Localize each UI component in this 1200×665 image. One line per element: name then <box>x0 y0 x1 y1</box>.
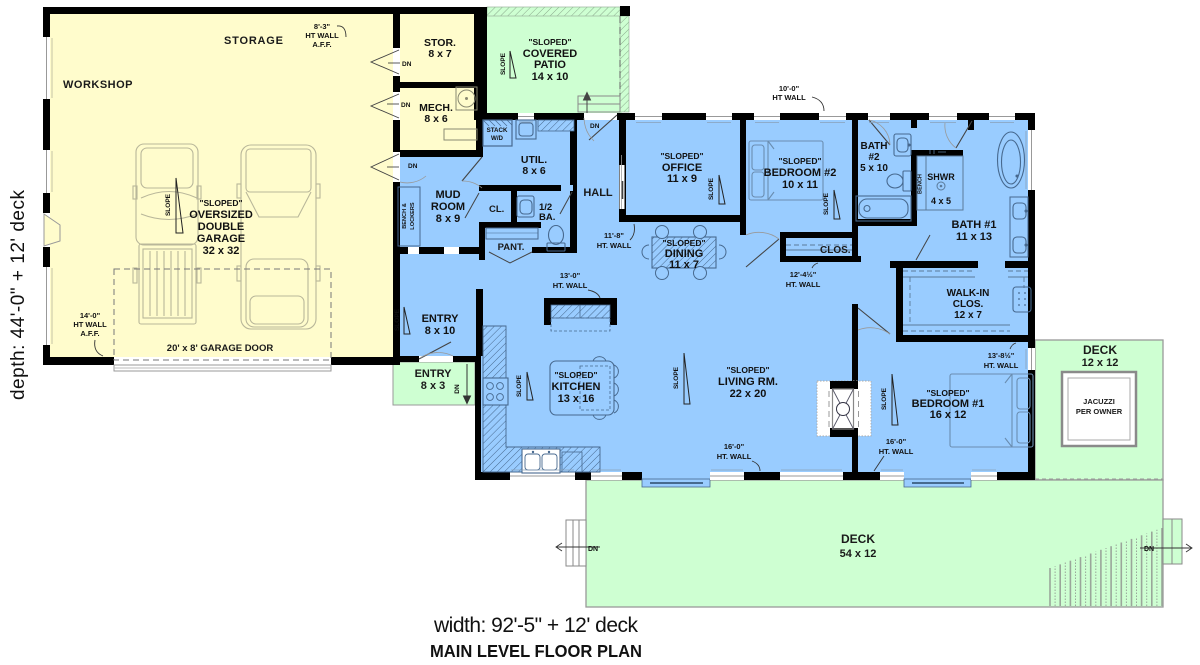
svg-text:SHWR: SHWR <box>927 172 955 182</box>
svg-text:BEDROOM #2: BEDROOM #2 <box>764 167 837 179</box>
svg-text:A.F.F.: A.F.F. <box>312 40 331 49</box>
svg-text:WALK-IN: WALK-IN <box>947 288 990 299</box>
svg-text:11 x 13: 11 x 13 <box>956 231 992 243</box>
svg-text:4 x 5: 4 x 5 <box>931 196 951 206</box>
svg-text:STACK: STACK <box>487 127 508 134</box>
svg-text:GARAGE: GARAGE <box>197 233 245 245</box>
svg-text:ENTRY: ENTRY <box>422 313 460 325</box>
svg-text:14'-0": 14'-0" <box>80 311 101 320</box>
svg-text:"SLOPED": "SLOPED" <box>554 370 597 380</box>
svg-text:A.F.F.: A.F.F. <box>80 329 99 338</box>
svg-text:width: 92'-5" + 12' deck: width: 92'-5" + 12' deck <box>433 614 639 637</box>
svg-text:"SLOPED": "SLOPED" <box>660 151 703 161</box>
svg-text:HT. WALL: HT. WALL <box>984 361 1019 370</box>
svg-text:HT. WALL: HT. WALL <box>879 447 914 456</box>
svg-text:BATH #1: BATH #1 <box>951 219 996 231</box>
svg-text:JACUZZI: JACUZZI <box>1083 397 1115 406</box>
svg-text:DN: DN <box>588 546 598 553</box>
svg-text:SLOPE: SLOPE <box>516 374 523 397</box>
svg-text:8 x 6: 8 x 6 <box>424 113 448 125</box>
svg-text:8 x 9: 8 x 9 <box>436 213 460 225</box>
svg-text:DN: DN <box>454 384 461 394</box>
svg-text:LOCKERS: LOCKERS <box>410 202 416 230</box>
svg-text:HT WALL: HT WALL <box>772 93 806 102</box>
svg-text:"SLOPED": "SLOPED" <box>778 156 821 166</box>
svg-text:depth: 44'-0" + 12' deck: depth: 44'-0" + 12' deck <box>8 190 29 401</box>
svg-text:16'-0": 16'-0" <box>724 442 745 451</box>
svg-text:HT. WALL: HT. WALL <box>553 281 588 290</box>
svg-text:HT. WALL: HT. WALL <box>597 241 632 250</box>
svg-text:DECK: DECK <box>841 532 875 546</box>
svg-text:DECK: DECK <box>1083 343 1117 357</box>
svg-text:"SLOPED": "SLOPED" <box>926 388 969 398</box>
svg-text:11 x 7: 11 x 7 <box>669 259 699 271</box>
svg-text:MUD: MUD <box>435 189 460 201</box>
svg-text:ROOM: ROOM <box>431 201 465 213</box>
svg-text:SLOPE: SLOPE <box>823 192 830 215</box>
svg-text:W/D: W/D <box>491 135 504 142</box>
svg-text:14 x 10: 14 x 10 <box>532 71 569 83</box>
svg-text:HT WALL: HT WALL <box>305 31 339 40</box>
svg-text:8'-3": 8'-3" <box>314 22 331 31</box>
svg-text:DN: DN <box>1144 546 1154 553</box>
svg-text:10'-0": 10'-0" <box>779 84 800 93</box>
svg-text:13 x 16: 13 x 16 <box>558 393 595 405</box>
svg-text:#2: #2 <box>868 152 880 163</box>
svg-text:16'-0": 16'-0" <box>886 437 907 446</box>
svg-text:20' x 8' GARAGE DOOR: 20' x 8' GARAGE DOOR <box>167 343 274 354</box>
svg-text:13'-0": 13'-0" <box>560 271 581 280</box>
svg-text:OVERSIZED: OVERSIZED <box>189 209 253 221</box>
svg-text:12 x 12: 12 x 12 <box>1082 357 1119 369</box>
svg-text:HT WALL: HT WALL <box>73 320 107 329</box>
svg-text:BENCH &: BENCH & <box>402 203 408 228</box>
svg-text:ENTRY: ENTRY <box>415 368 453 380</box>
svg-text:"SLOPED": "SLOPED" <box>662 238 705 248</box>
svg-text:11 x 9: 11 x 9 <box>667 173 697 185</box>
svg-text:5 x 10: 5 x 10 <box>860 163 888 174</box>
svg-text:PER OWNER: PER OWNER <box>1076 407 1123 416</box>
svg-text:"SLOPED": "SLOPED" <box>726 365 769 375</box>
svg-text:11'-8": 11'-8" <box>604 231 624 240</box>
svg-text:BA.: BA. <box>539 212 555 223</box>
svg-text:DN: DN <box>408 163 418 170</box>
svg-text:SLOPE: SLOPE <box>165 193 172 216</box>
svg-text:SLOPE: SLOPE <box>673 366 680 389</box>
svg-text:CL.: CL. <box>489 204 504 215</box>
svg-text:12'-4½": 12'-4½" <box>790 270 817 279</box>
svg-text:KITCHEN: KITCHEN <box>552 381 601 393</box>
svg-text:54 x 12: 54 x 12 <box>840 548 877 560</box>
svg-text:SLOPE: SLOPE <box>500 52 507 75</box>
svg-text:WORKSHOP: WORKSHOP <box>63 79 133 91</box>
svg-text:8 x 3: 8 x 3 <box>421 380 445 392</box>
svg-text:13'-8½": 13'-8½" <box>988 351 1015 360</box>
svg-text:DN: DN <box>590 123 600 130</box>
svg-text:SLOPE: SLOPE <box>394 308 401 331</box>
svg-text:22 x 20: 22 x 20 <box>730 388 767 400</box>
svg-text:16 x 12: 16 x 12 <box>930 409 967 421</box>
svg-text:"SLOPED": "SLOPED" <box>528 37 571 47</box>
svg-text:MAIN LEVEL FLOOR PLAN: MAIN LEVEL FLOOR PLAN <box>430 641 642 661</box>
svg-text:SLOPE: SLOPE <box>881 387 888 410</box>
svg-text:HALL: HALL <box>583 187 613 199</box>
svg-text:SLOPE: SLOPE <box>708 177 715 200</box>
svg-text:BENCH: BENCH <box>918 174 924 194</box>
svg-text:HT. WALL: HT. WALL <box>717 452 752 461</box>
svg-text:CLOS.: CLOS. <box>953 299 984 310</box>
svg-text:8 x 10: 8 x 10 <box>425 325 456 337</box>
svg-text:LIVING RM.: LIVING RM. <box>718 376 778 388</box>
svg-text:DN: DN <box>402 61 412 68</box>
svg-text:8 x 6: 8 x 6 <box>522 165 546 177</box>
svg-text:DN: DN <box>401 102 411 109</box>
svg-text:PANT.: PANT. <box>498 242 525 253</box>
svg-text:STORAGE: STORAGE <box>224 35 284 47</box>
svg-text:BATH: BATH <box>860 141 887 152</box>
svg-text:"SLOPED": "SLOPED" <box>199 198 242 208</box>
svg-text:8 x 7: 8 x 7 <box>428 48 452 60</box>
svg-text:CLOS.: CLOS. <box>820 245 851 256</box>
svg-text:12 x 7: 12 x 7 <box>954 310 982 321</box>
svg-text:PATIO: PATIO <box>534 59 566 71</box>
svg-text:10 x 11: 10 x 11 <box>782 179 818 191</box>
svg-text:DOUBLE: DOUBLE <box>198 221 244 233</box>
svg-text:32 x 32: 32 x 32 <box>203 245 240 257</box>
svg-text:HT. WALL: HT. WALL <box>786 280 821 289</box>
